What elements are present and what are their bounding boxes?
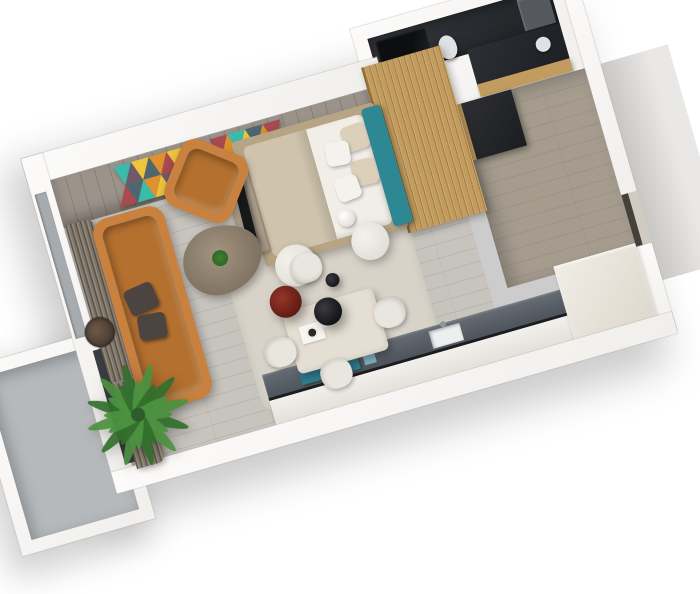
palm-fronds bbox=[74, 350, 203, 479]
armchair-seat bbox=[171, 146, 241, 216]
sofa-cushion bbox=[136, 311, 168, 341]
bed-pillow bbox=[324, 140, 352, 168]
apartment-render bbox=[0, 0, 700, 594]
